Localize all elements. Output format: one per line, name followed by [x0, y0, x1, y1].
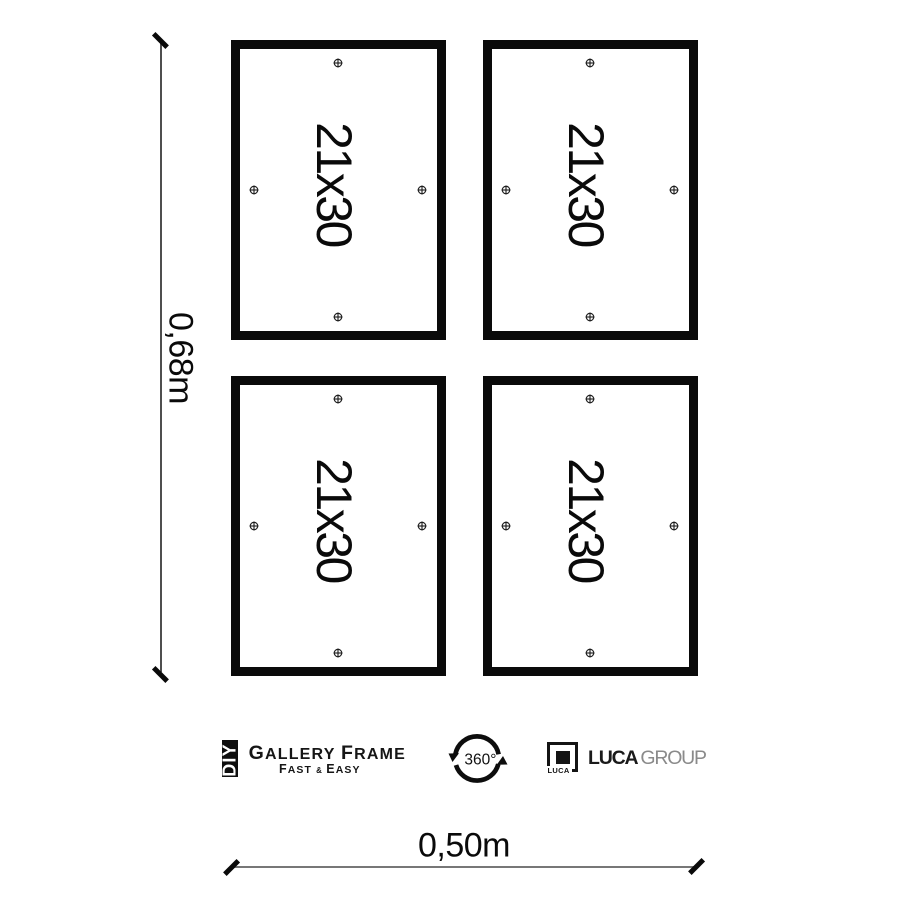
svg-text:360°: 360° [464, 752, 496, 769]
